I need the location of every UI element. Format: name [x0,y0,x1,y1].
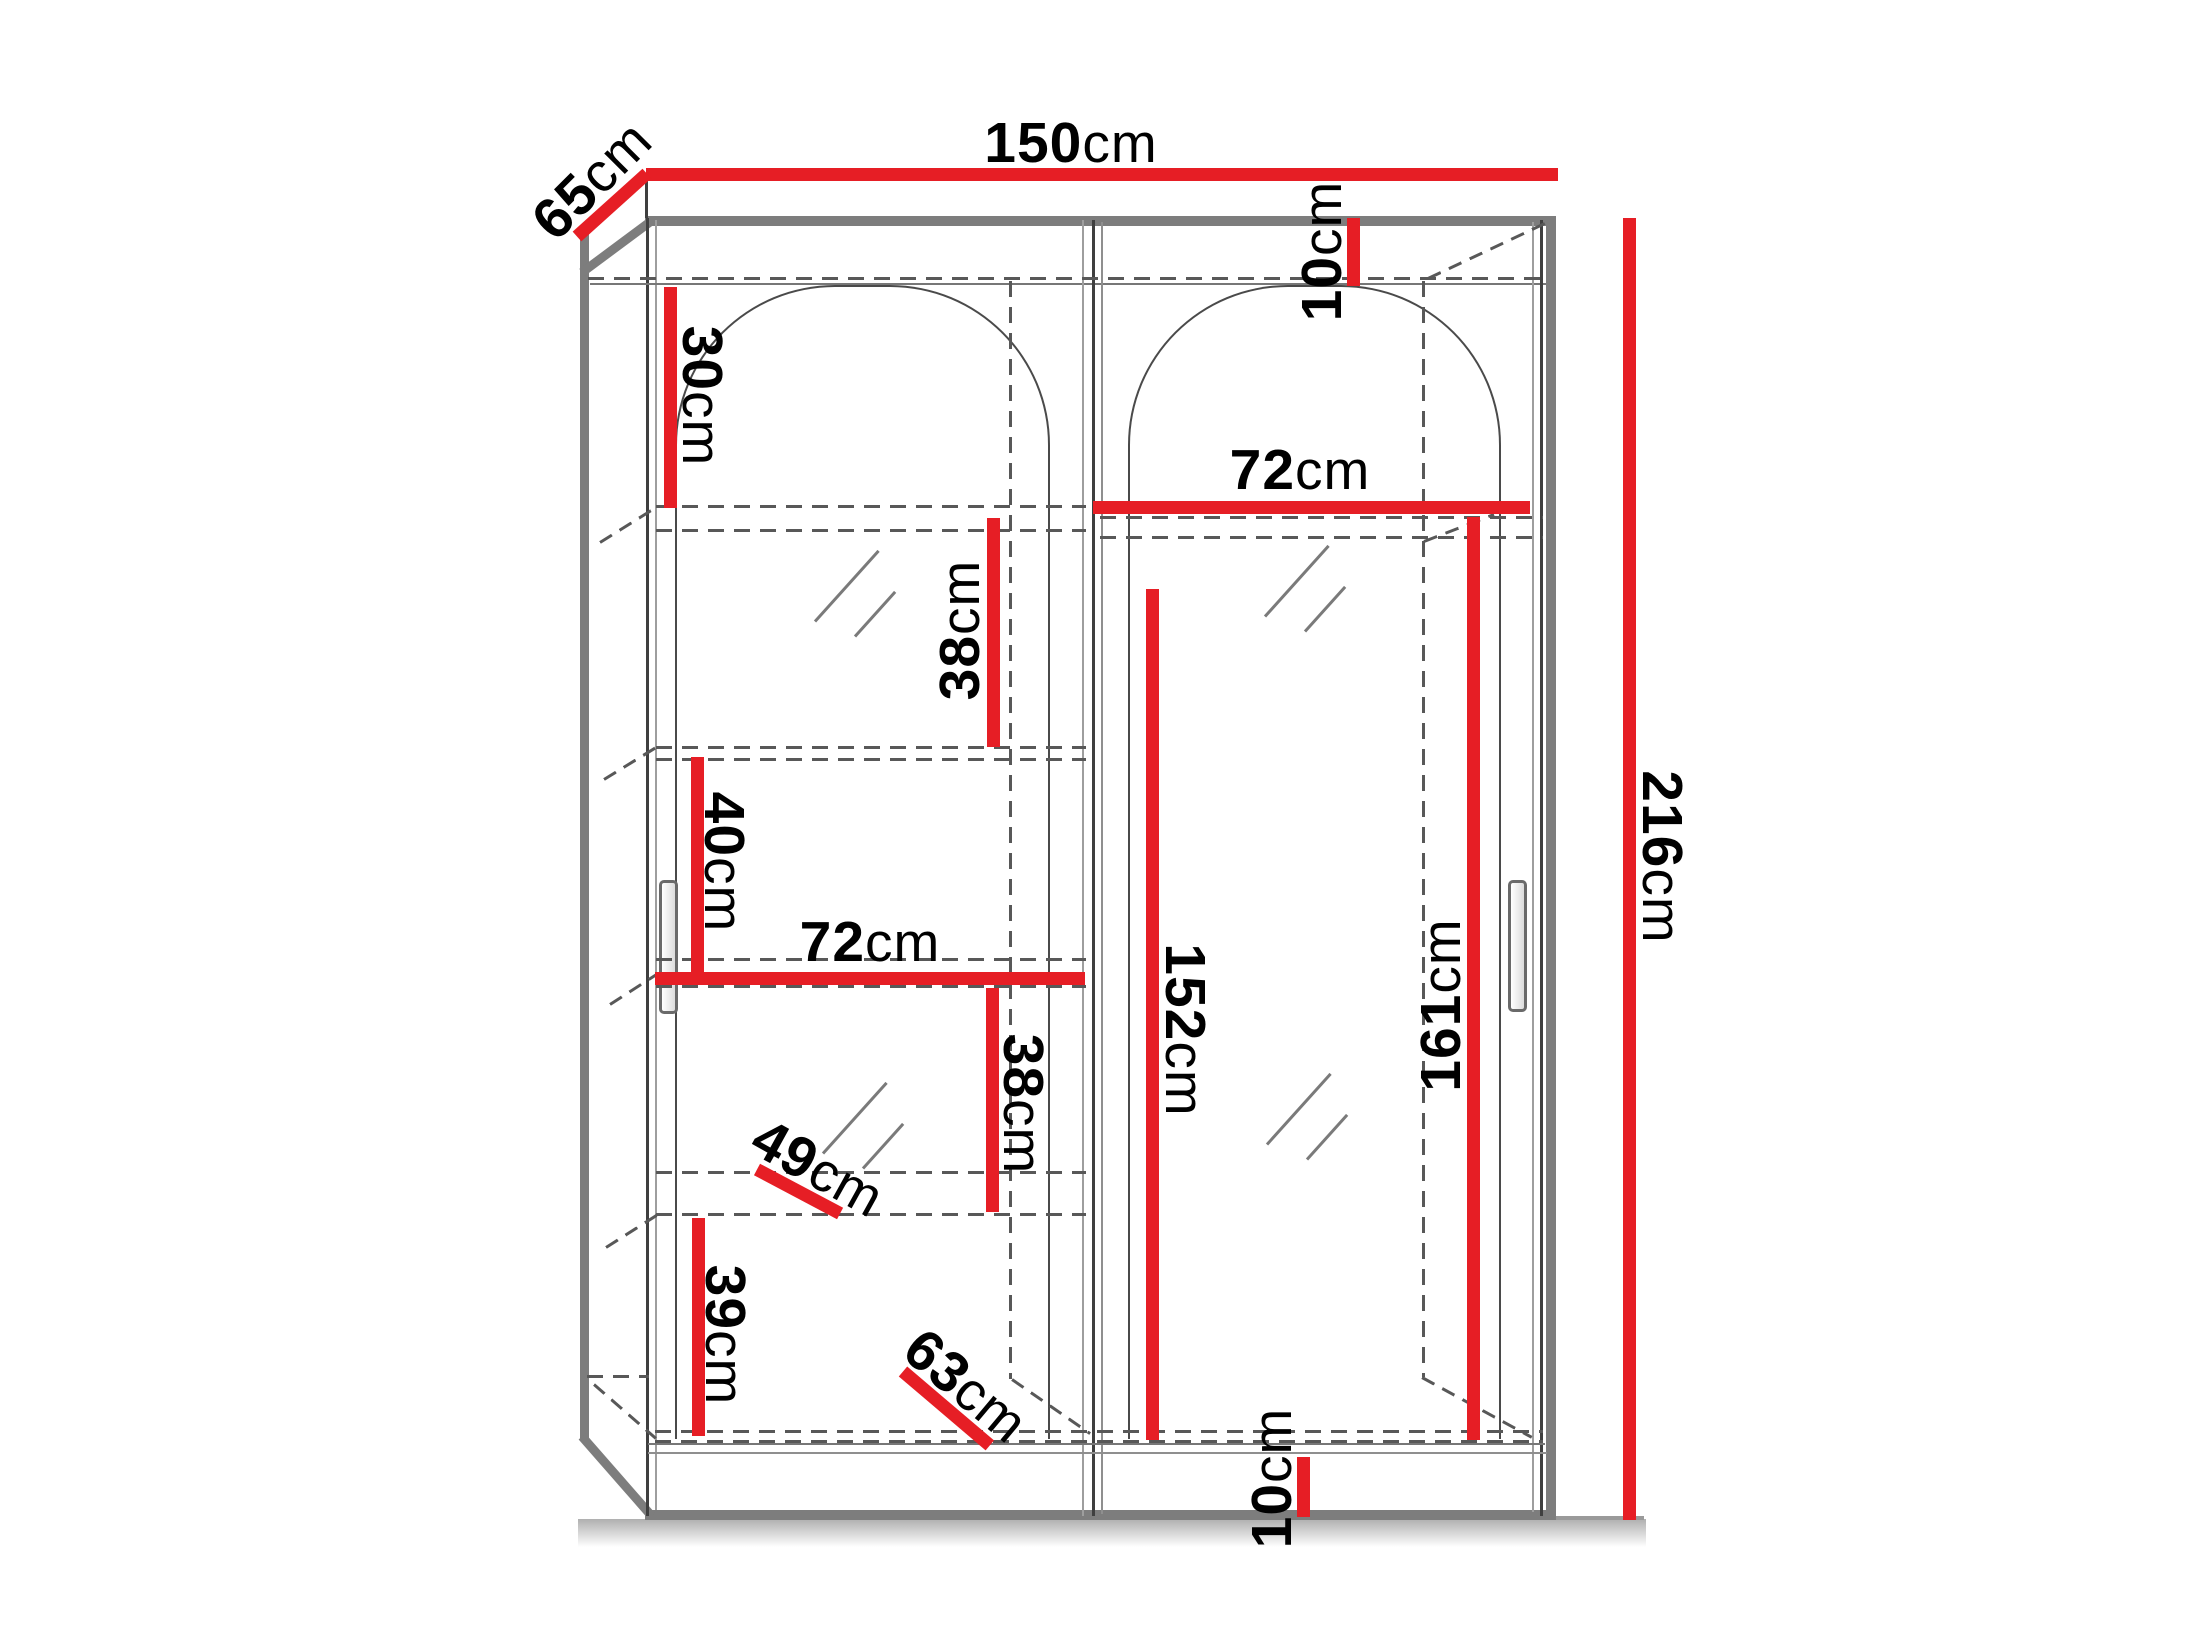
shelf1-front-dashed [656,505,1086,508]
dim-label-39: 39cm [692,1265,758,1406]
interior-floor-dashed-2 [655,1440,1543,1443]
right-door-handle [1508,880,1527,1012]
side-bottom-dashed [587,1375,649,1378]
mirror-mark-upper-left [815,545,925,645]
right-door-left-edge [1101,222,1103,1514]
left-door-right-edge [1082,220,1084,1516]
shelf2-back-dashed [656,758,1086,761]
door-bottom-line [648,1443,1545,1445]
interior-ceiling-line [590,283,1546,285]
right-door-frame-line [1532,222,1534,1512]
center-divider-line [1092,220,1095,1516]
interior-floor-dashed-1 [655,1430,1543,1433]
right-back-dashed [1422,281,1425,1377]
mirror-mark-upper-right [1265,540,1375,640]
wardrobe-diagram: 150cm 65cm 10cm 30cm 72cm 38cm 40cm 72cm… [0,0,2200,1650]
shelf1-back-dashed [656,529,1086,532]
dim-label-38-lower: 38cm [990,1034,1056,1175]
floor-shadow [578,1519,1646,1547]
dim-label-38-upper: 38cm [927,560,993,701]
cabinet-bottom-left-chamfer [579,1434,656,1520]
cabinet-left-edge [580,226,589,1440]
dim-label-height-216: 216cm [1629,770,1695,943]
dim-label-gap-10-bottom: 10cm [1239,1408,1305,1549]
dim-label-72-left: 72cm [800,909,941,975]
left-door-handle [659,880,678,1014]
shelf2-front-dashed [656,746,1086,749]
dim-label-30: 30cm [669,326,735,467]
right-door-right-edge [1540,220,1543,1516]
dim-label-161: 161cm [1408,918,1474,1091]
interior-ceiling-dashed [588,277,1545,280]
mirror-mark-lower-right [1267,1068,1377,1168]
dim-label-gap-10-top: 10cm [1289,181,1355,322]
shelf3-back-dashed [656,985,1086,988]
front-left-edge [646,218,649,1516]
plinth-top-line [648,1452,1547,1454]
cabinet-right-edge [1546,216,1556,1520]
dim-label-72-right: 72cm [1230,437,1371,503]
dim-label-width-150: 150cm [984,110,1157,176]
shelf4-end-diagonal [605,1214,658,1249]
dim-label-40: 40cm [691,792,757,933]
left-door-frame-line [655,220,657,1510]
shelf3-end-diagonal [609,972,659,1005]
dim-label-152: 152cm [1152,943,1218,1116]
cabinet-top-edge [645,216,1552,226]
